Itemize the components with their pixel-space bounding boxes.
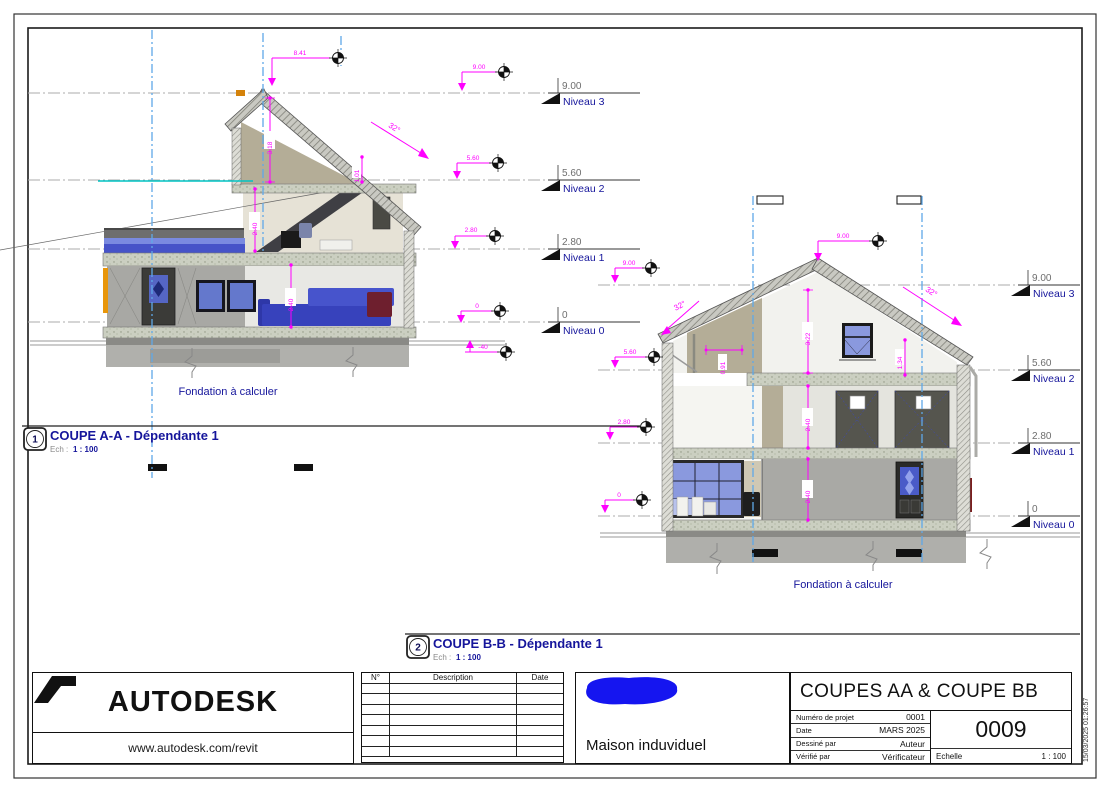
aa-slope-annotation: 32°: [371, 121, 429, 159]
view-scale-value: 1 : 100: [456, 653, 481, 662]
bb-foundation-note: Fondation à calculer: [793, 579, 892, 591]
field-scale: Echelle 1 : 100: [931, 748, 1071, 763]
aa-office-chair: [299, 223, 312, 238]
field-label: Vérifié par: [796, 752, 830, 761]
field-label: Dessiné par: [796, 739, 836, 748]
revision-empty-row: [362, 747, 563, 758]
field-value: MARS 2025: [879, 725, 925, 735]
revision-header-row: N° Description Date: [362, 673, 563, 684]
svg-text:32°: 32°: [672, 299, 687, 313]
bb-extent-marker: [757, 196, 783, 204]
revision-footer: [362, 757, 563, 762]
aa-spot-level3: 9.00: [458, 64, 497, 91]
revision-empty-row: [362, 726, 563, 737]
bb-gable-window: [839, 323, 876, 360]
bb-floor1-slab: [667, 448, 970, 459]
revision-empty-row: [362, 694, 563, 705]
svg-text:2.40: 2.40: [288, 298, 295, 311]
titleblock-owner-cell: Maison induviduel: [575, 672, 790, 764]
aa-gable-wall: [232, 128, 241, 185]
svg-text:2.80: 2.80: [465, 227, 478, 234]
svg-text:5.60: 5.60: [624, 349, 637, 356]
bb-ground-wall: [762, 459, 957, 520]
svg-text:Niveau 1: Niveau 1: [563, 252, 605, 264]
print-timestamp: 15/03/2025 01:26:57: [1083, 682, 1090, 762]
level-marker: 9.00 Niveau 3: [541, 78, 640, 108]
svg-text:2.80: 2.80: [562, 237, 582, 248]
svg-text:Niveau 2: Niveau 2: [563, 183, 605, 195]
field-label: Date: [796, 726, 812, 735]
drawing-sheet: 8.41 9.00 5.60 2.80 0 -40: [0, 0, 1110, 792]
bb-attic-slab: [747, 373, 970, 386]
svg-text:2.80: 2.80: [618, 419, 631, 426]
bb-downspout: [970, 367, 976, 457]
svg-text:Niveau 0: Niveau 0: [563, 325, 605, 337]
svg-text:9.00: 9.00: [837, 233, 850, 240]
revision-empty-row: [362, 684, 563, 695]
aa-desk: [320, 240, 352, 250]
bb-spot-level3: 9.00: [611, 260, 644, 283]
svg-text:5.60: 5.60: [562, 168, 582, 179]
svg-text:9.00: 9.00: [473, 64, 486, 71]
bb-foundation-top: [666, 531, 966, 537]
level-marker: 2.80 Niveau 1: [1011, 428, 1080, 458]
svg-text:Niveau 1: Niveau 1: [1033, 446, 1075, 458]
revision-empty-row: [362, 715, 563, 726]
coupe-bb-drawing[interactable]: [658, 196, 991, 574]
aa-dim-ridge: 8.41: [268, 50, 330, 86]
bb-spot-level2: 5.60: [611, 349, 647, 368]
field-value: Auteur: [900, 739, 925, 749]
bb-spot-level1: 2.80: [606, 419, 639, 440]
svg-text:2.80: 2.80: [1032, 431, 1052, 442]
svg-text:0.91: 0.91: [720, 361, 727, 374]
bb-floor2-door-1: [836, 391, 878, 448]
level-marker: 5.60 Niveau 2: [1011, 355, 1080, 385]
svg-text:Niveau 0: Niveau 0: [1033, 519, 1075, 531]
scale-value: 1 : 100: [1042, 752, 1066, 761]
sheet-number: 0009: [931, 711, 1071, 748]
titleblock-logo-cell: AUTODESK www.autodesk.com/revit: [32, 672, 354, 764]
svg-text:1.01: 1.01: [354, 169, 361, 182]
view-title-coupe-bb[interactable]: 2 COUPE B-B - Dépendante 1 Ech : 1 : 100: [405, 634, 1080, 662]
titleblock-info-cell: COUPES AA & COUPE BB Numéro de projet 00…: [790, 672, 1072, 764]
view-scale-label: Ech :: [50, 445, 68, 454]
revision-col-date: Date: [517, 673, 563, 683]
aa-ridge-cap: [236, 90, 245, 96]
aa-planter-top: [104, 238, 245, 244]
svg-text:2.40: 2.40: [252, 222, 259, 235]
aa-spot-level2: 5.60: [453, 155, 491, 179]
aa-attic-slab: [232, 184, 416, 193]
aa-section-mark: [148, 464, 167, 471]
svg-text:9.00: 9.00: [562, 81, 582, 92]
bb-left-wall: [662, 343, 673, 531]
level-marker: 0 Niveau 0: [1011, 501, 1080, 531]
level-marker: 0 Niveau 0: [541, 307, 640, 337]
bb-ground-slab: [662, 520, 970, 531]
svg-text:5.60: 5.60: [1032, 358, 1052, 369]
autodesk-url: www.autodesk.com/revit: [33, 732, 353, 763]
svg-text:3.22: 3.22: [805, 332, 812, 345]
aa-section-mark: [294, 464, 313, 471]
view-scale-label: Ech :: [433, 653, 451, 662]
svg-text:8.41: 8.41: [294, 50, 307, 57]
revision-table: N° Description Date: [361, 672, 564, 763]
svg-text:0: 0: [617, 492, 621, 499]
field-drawn-by: Dessiné par Auteur: [791, 738, 930, 751]
svg-text:1.34: 1.34: [897, 356, 904, 369]
aa-downpipe: [103, 268, 108, 313]
field-value: Vérificateur: [882, 752, 925, 762]
aa-roof-left: [225, 89, 268, 131]
svg-text:3.18: 3.18: [267, 141, 274, 154]
aa-dim-knee: 1.01: [352, 155, 364, 183]
project-name: Maison induviduel: [586, 737, 706, 754]
revision-col-description: Description: [390, 673, 517, 683]
autodesk-logo-icon: [33, 673, 77, 705]
aa-ground-slab: [103, 327, 416, 338]
field-project-number: Numéro de projet 0001: [791, 711, 930, 724]
level-markers-bb: 9.00 Niveau 3 5.60 Niveau 2 2.80 Niveau …: [1011, 270, 1080, 531]
coupe-aa-drawing[interactable]: [0, 89, 421, 471]
view-title-text[interactable]: COUPE B-B - Dépendante 1: [433, 636, 603, 651]
svg-text:-40: -40: [478, 344, 488, 351]
svg-text:Niveau 2: Niveau 2: [1033, 373, 1075, 385]
view-title-text[interactable]: COUPE A-A - Dépendante 1: [50, 428, 219, 443]
field-value: 0001: [906, 712, 925, 722]
level-marker: 9.00 Niveau 3: [1011, 270, 1080, 300]
svg-text:32°: 32°: [924, 285, 939, 299]
svg-text:0: 0: [1032, 504, 1038, 515]
bb-entry-door: [896, 462, 923, 518]
bb-dim-ridge: 9.00: [814, 233, 870, 261]
view-title-coupe-aa[interactable]: 1 COUPE A-A - Dépendante 1 Ech : 1 : 100: [22, 426, 640, 454]
aa-spot-level0: 0: [457, 303, 493, 323]
revision-empty-row: [362, 705, 563, 716]
aa-foundation-note: Fondation à calculer: [178, 386, 277, 398]
svg-text:Niveau 3: Niveau 3: [1033, 288, 1075, 300]
bb-spot-level0: 0: [601, 492, 635, 513]
level-markers-aa: 9.00 Niveau 3 5.60 Niveau 2 2.80 Niveau …: [541, 78, 640, 337]
field-date: Date MARS 2025: [791, 724, 930, 737]
sheet-title: COUPES AA & COUPE BB: [791, 673, 1071, 711]
field-label: Numéro de projet: [796, 713, 854, 722]
svg-text:2.40: 2.40: [805, 418, 812, 431]
svg-text:5.60: 5.60: [467, 155, 480, 162]
aa-tv: [281, 231, 301, 248]
revision-col-number: N°: [362, 673, 390, 683]
svg-text:1: 1: [32, 435, 38, 446]
autodesk-logo-text: AUTODESK: [108, 686, 278, 719]
bb-extent-marker: [897, 196, 921, 204]
svg-text:9.00: 9.00: [623, 260, 636, 267]
svg-text:9.00: 9.00: [1032, 273, 1052, 284]
aa-planter: [104, 244, 245, 253]
aa-floor1-slab: [103, 253, 416, 266]
svg-text:0: 0: [562, 310, 568, 321]
level-marker: 5.60 Niveau 2: [541, 165, 640, 195]
svg-text:Niveau 3: Niveau 3: [563, 96, 605, 108]
svg-text:2: 2: [415, 643, 421, 654]
svg-text:2.40: 2.40: [805, 490, 812, 503]
svg-text:0: 0: [475, 303, 479, 310]
aa-spot-below-grade: -40: [465, 340, 499, 352]
field-checked-by: Vérifié par Vérificateur: [791, 751, 930, 763]
view-scale-value: 1 : 100: [73, 445, 98, 454]
aa-spot-level1: 2.80: [451, 227, 488, 249]
revision-empty-row: [362, 736, 563, 747]
redaction-scribble: [577, 674, 687, 710]
aa-right-wall: [404, 231, 414, 328]
scale-label: Echelle: [936, 752, 962, 761]
bb-right-wall: [957, 365, 970, 531]
